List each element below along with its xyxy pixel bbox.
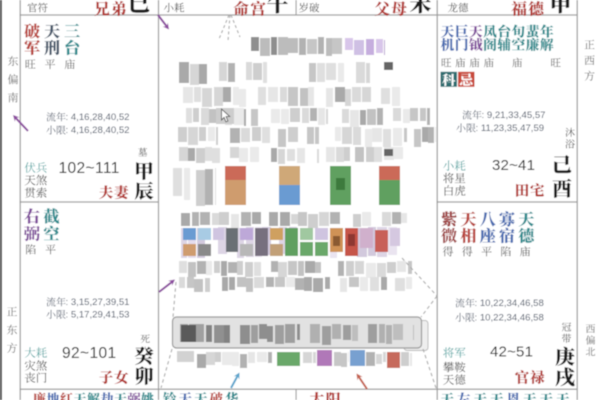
svg-text:92~101: 92~101 <box>62 345 117 362</box>
svg-text:: 5,17,29,41,53: : 5,17,29,41,53 <box>66 310 130 321</box>
svg-text:: 11,23,35,47,59: : 11,23,35,47,59 <box>476 123 545 134</box>
svg-text:: 4,16,28,40,52: : 4,16,28,40,52 <box>66 125 130 136</box>
svg-text:32~41: 32~41 <box>492 157 535 174</box>
svg-text:: 9,21,33,45,57: : 9,21,33,45,57 <box>482 110 546 121</box>
svg-text:: 4,16,28,40,52: : 4,16,28,40,52 <box>66 112 130 123</box>
svg-text:102~111: 102~111 <box>59 160 120 177</box>
svg-text:: 3,15,27,39,51: : 3,15,27,39,51 <box>66 297 130 308</box>
svg-text:: 10,22,34,46,58: : 10,22,34,46,58 <box>475 298 544 309</box>
svg-text:42~51: 42~51 <box>490 344 533 361</box>
svg-text:: 10,22,34,46,58: : 10,22,34,46,58 <box>475 313 544 324</box>
